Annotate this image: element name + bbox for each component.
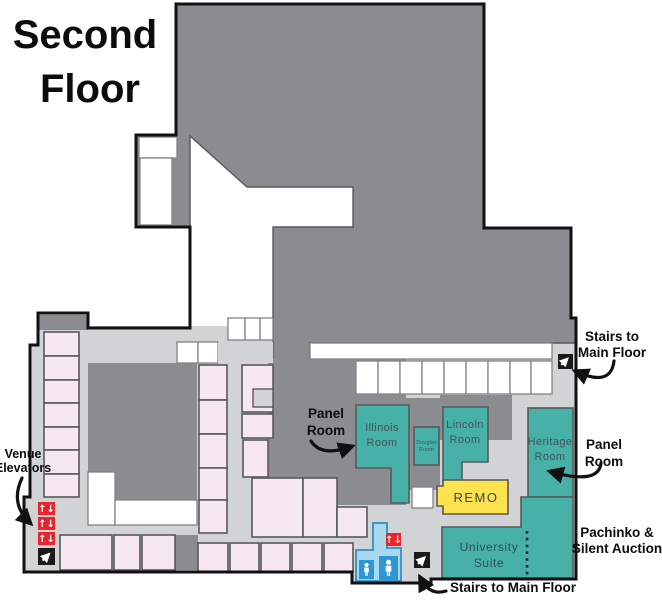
label-venue-elevators: Venue [5, 447, 42, 461]
label-venue-elevators: Elevators [0, 461, 51, 475]
corridor-vertical [227, 363, 242, 432]
label-panel-right: Panel [586, 437, 622, 452]
corridor-white-band [310, 343, 552, 359]
room-douglas [414, 427, 439, 465]
label-panel-left: Panel [308, 406, 344, 421]
label-pachinko: Pachinko & [580, 525, 654, 540]
venue-elevator-icons: ↑↓ ↑↓ ↑↓ [38, 502, 55, 545]
restroom-icon-right [379, 556, 398, 580]
elevator-icon: ↑↓ [385, 535, 402, 546]
page-title-line1: Second [13, 13, 157, 57]
room-douglas-label: Douglas [416, 440, 437, 446]
stairs-icon-topright [558, 354, 573, 369]
bottom-core-block [175, 535, 198, 570]
room-illinois-label: Illinois [365, 422, 399, 434]
label-stairs-top: Stairs to [585, 329, 639, 344]
label-panel-right: Room [585, 454, 623, 469]
room-remo-label: REMO [454, 490, 499, 505]
stairs-icon-bottom [414, 552, 430, 568]
white-room-row [356, 361, 552, 394]
label-pachinko: Silent Auction [572, 541, 662, 556]
elevator-icon: ↑↓ [38, 519, 55, 530]
room-douglas-label: Room [419, 447, 434, 453]
room-university-label: Suite [474, 556, 504, 570]
room-lincoln-label: Lincoln [446, 419, 484, 431]
elevator-icon-center: ↑↓ [385, 533, 402, 546]
page-title-line2: Floor [40, 67, 140, 111]
corridor-junction [218, 342, 273, 363]
room-lincoln-label: Room [450, 434, 481, 446]
elevator-icon: ↑↓ [38, 534, 55, 545]
label-panel-left: Room [307, 423, 345, 438]
left-wing-top-strip [38, 315, 88, 330]
room-heritage-label: Heritage [528, 436, 573, 448]
room-university-label: University [460, 540, 519, 554]
stairs-icon-left [38, 548, 55, 565]
room-heritage-label: Room [535, 451, 566, 463]
label-stairs-top: Main Floor [578, 345, 647, 360]
pink-room-notch [253, 389, 273, 407]
room-illinois-label: Room [367, 437, 398, 449]
elevator-icon: ↑↓ [38, 504, 55, 515]
arrow-stairs-top [577, 361, 614, 377]
restroom-icon-left [359, 560, 374, 579]
second-floor-map: ↑↓ ↑↓ ↑↓ ↑↓ Second Floor Illinois Room D… [0, 0, 662, 603]
label-stairs-bottom: Stairs to Main Floor [450, 580, 577, 595]
